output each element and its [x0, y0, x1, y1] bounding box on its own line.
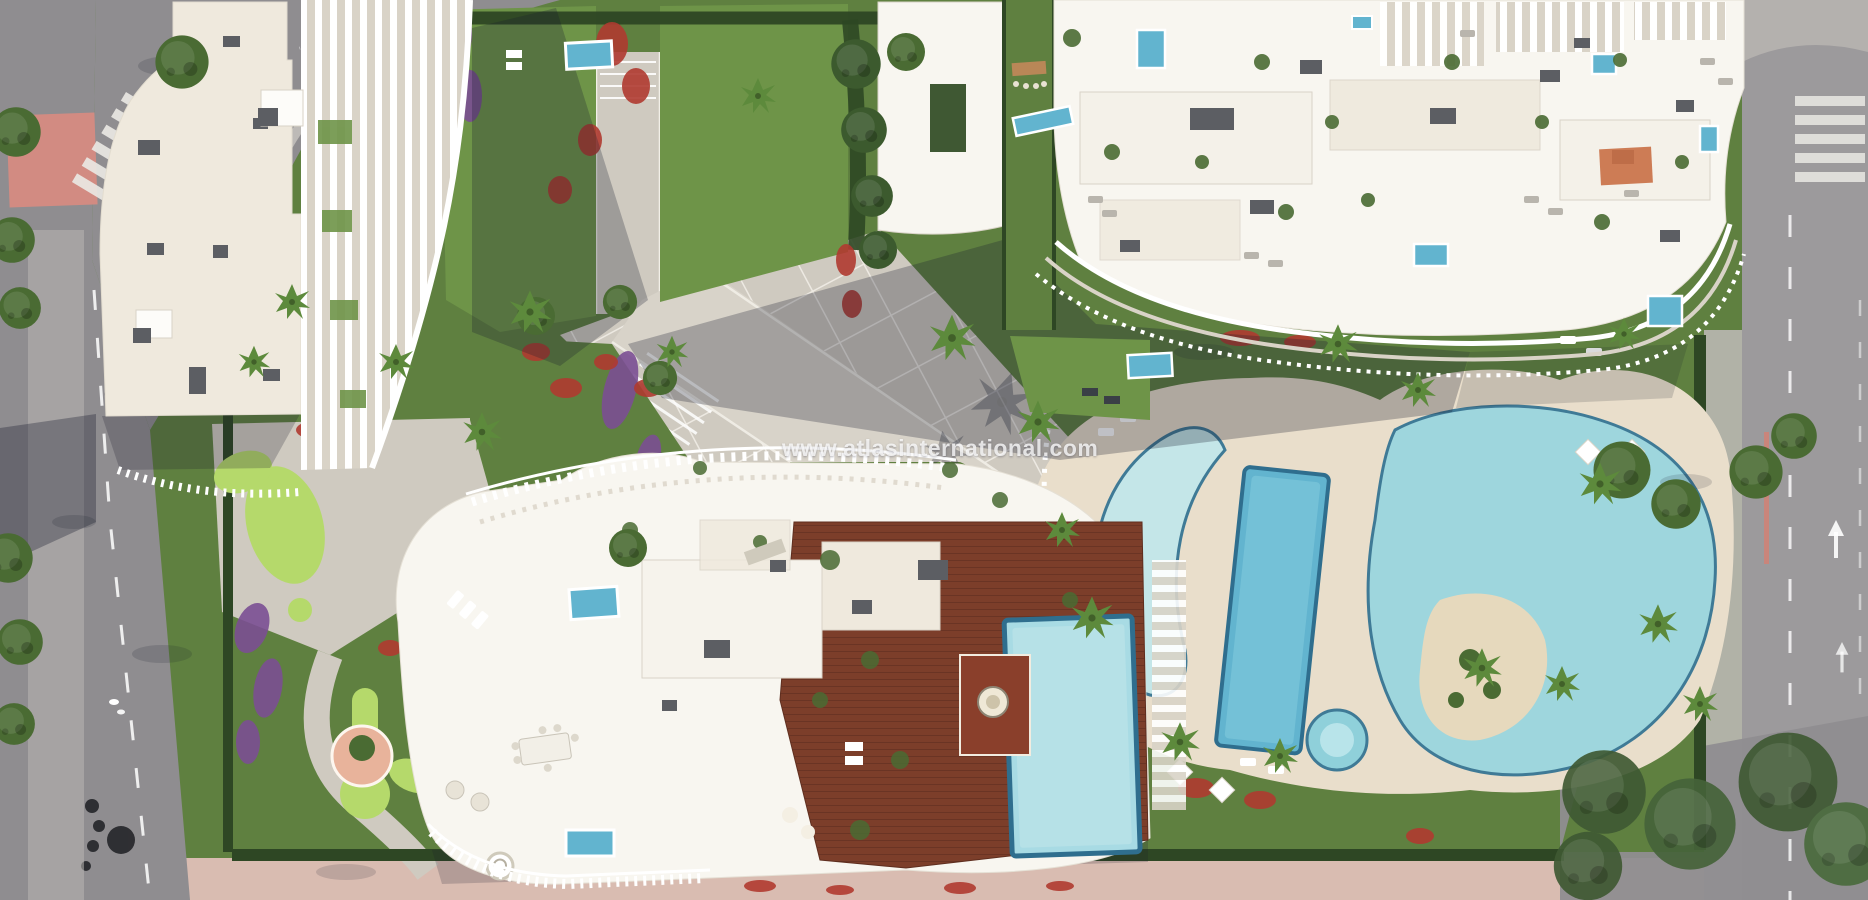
deck-lounger	[845, 756, 863, 765]
tree	[0, 287, 41, 329]
pergola-louvers	[1496, 2, 1624, 52]
lawn	[660, 4, 848, 302]
tree-shadow	[132, 645, 192, 663]
green-roof-box	[930, 84, 966, 152]
deck-pouf	[801, 825, 815, 839]
bird	[117, 710, 125, 715]
tree	[155, 35, 208, 88]
jacuzzi-inner	[1320, 723, 1354, 757]
tree	[1771, 413, 1817, 459]
tree-shadow	[1174, 344, 1234, 360]
tree-shadow	[316, 864, 376, 880]
garden-dining-table	[1012, 61, 1047, 76]
tree	[831, 39, 880, 88]
tree	[643, 361, 677, 395]
lounger	[506, 50, 522, 58]
left-verge	[28, 230, 84, 900]
tree	[1729, 445, 1782, 498]
tree-shadow	[52, 515, 96, 529]
aerial-residential-complex-render: www.atlasinternational.com	[0, 0, 1868, 900]
pergola-louvers	[1634, 2, 1726, 40]
building-shadow	[102, 414, 300, 470]
rooftop-pool	[1352, 16, 1372, 29]
tree	[603, 285, 637, 319]
rooftop-pool	[1592, 54, 1616, 74]
tree	[859, 231, 897, 269]
island-plant	[1448, 692, 1464, 708]
bird	[109, 699, 119, 705]
rooftop-penthouse-box	[133, 310, 172, 343]
rooftop-pool	[1700, 126, 1718, 152]
rooftop-pool	[566, 830, 614, 856]
building-c	[396, 448, 1186, 884]
lounge-chair	[446, 781, 464, 799]
lounger	[1104, 396, 1120, 404]
tree	[841, 107, 887, 153]
tree	[609, 529, 647, 567]
tree	[887, 33, 925, 71]
tree	[1651, 479, 1700, 528]
lounger	[506, 62, 522, 70]
pergola-band	[1152, 560, 1186, 810]
building-shadow	[1456, 344, 1688, 408]
play-circle	[332, 726, 392, 786]
terrace-rug	[1599, 147, 1653, 186]
rooftop-pool	[569, 586, 619, 619]
garden-pool	[1648, 296, 1682, 326]
rooftop-pool	[1414, 244, 1448, 266]
lounge-chair	[471, 793, 489, 811]
lounger	[1082, 388, 1098, 396]
rooftop-penthouse-box	[258, 90, 303, 126]
garden-pool	[1127, 353, 1172, 378]
scene-canvas	[0, 0, 1868, 900]
deck-pouf	[782, 807, 798, 823]
daybed-platform	[960, 655, 1030, 755]
tree	[851, 175, 893, 217]
deck-lounger	[845, 742, 863, 751]
rooftop-pool	[1137, 30, 1165, 68]
garden-pool	[565, 41, 612, 69]
